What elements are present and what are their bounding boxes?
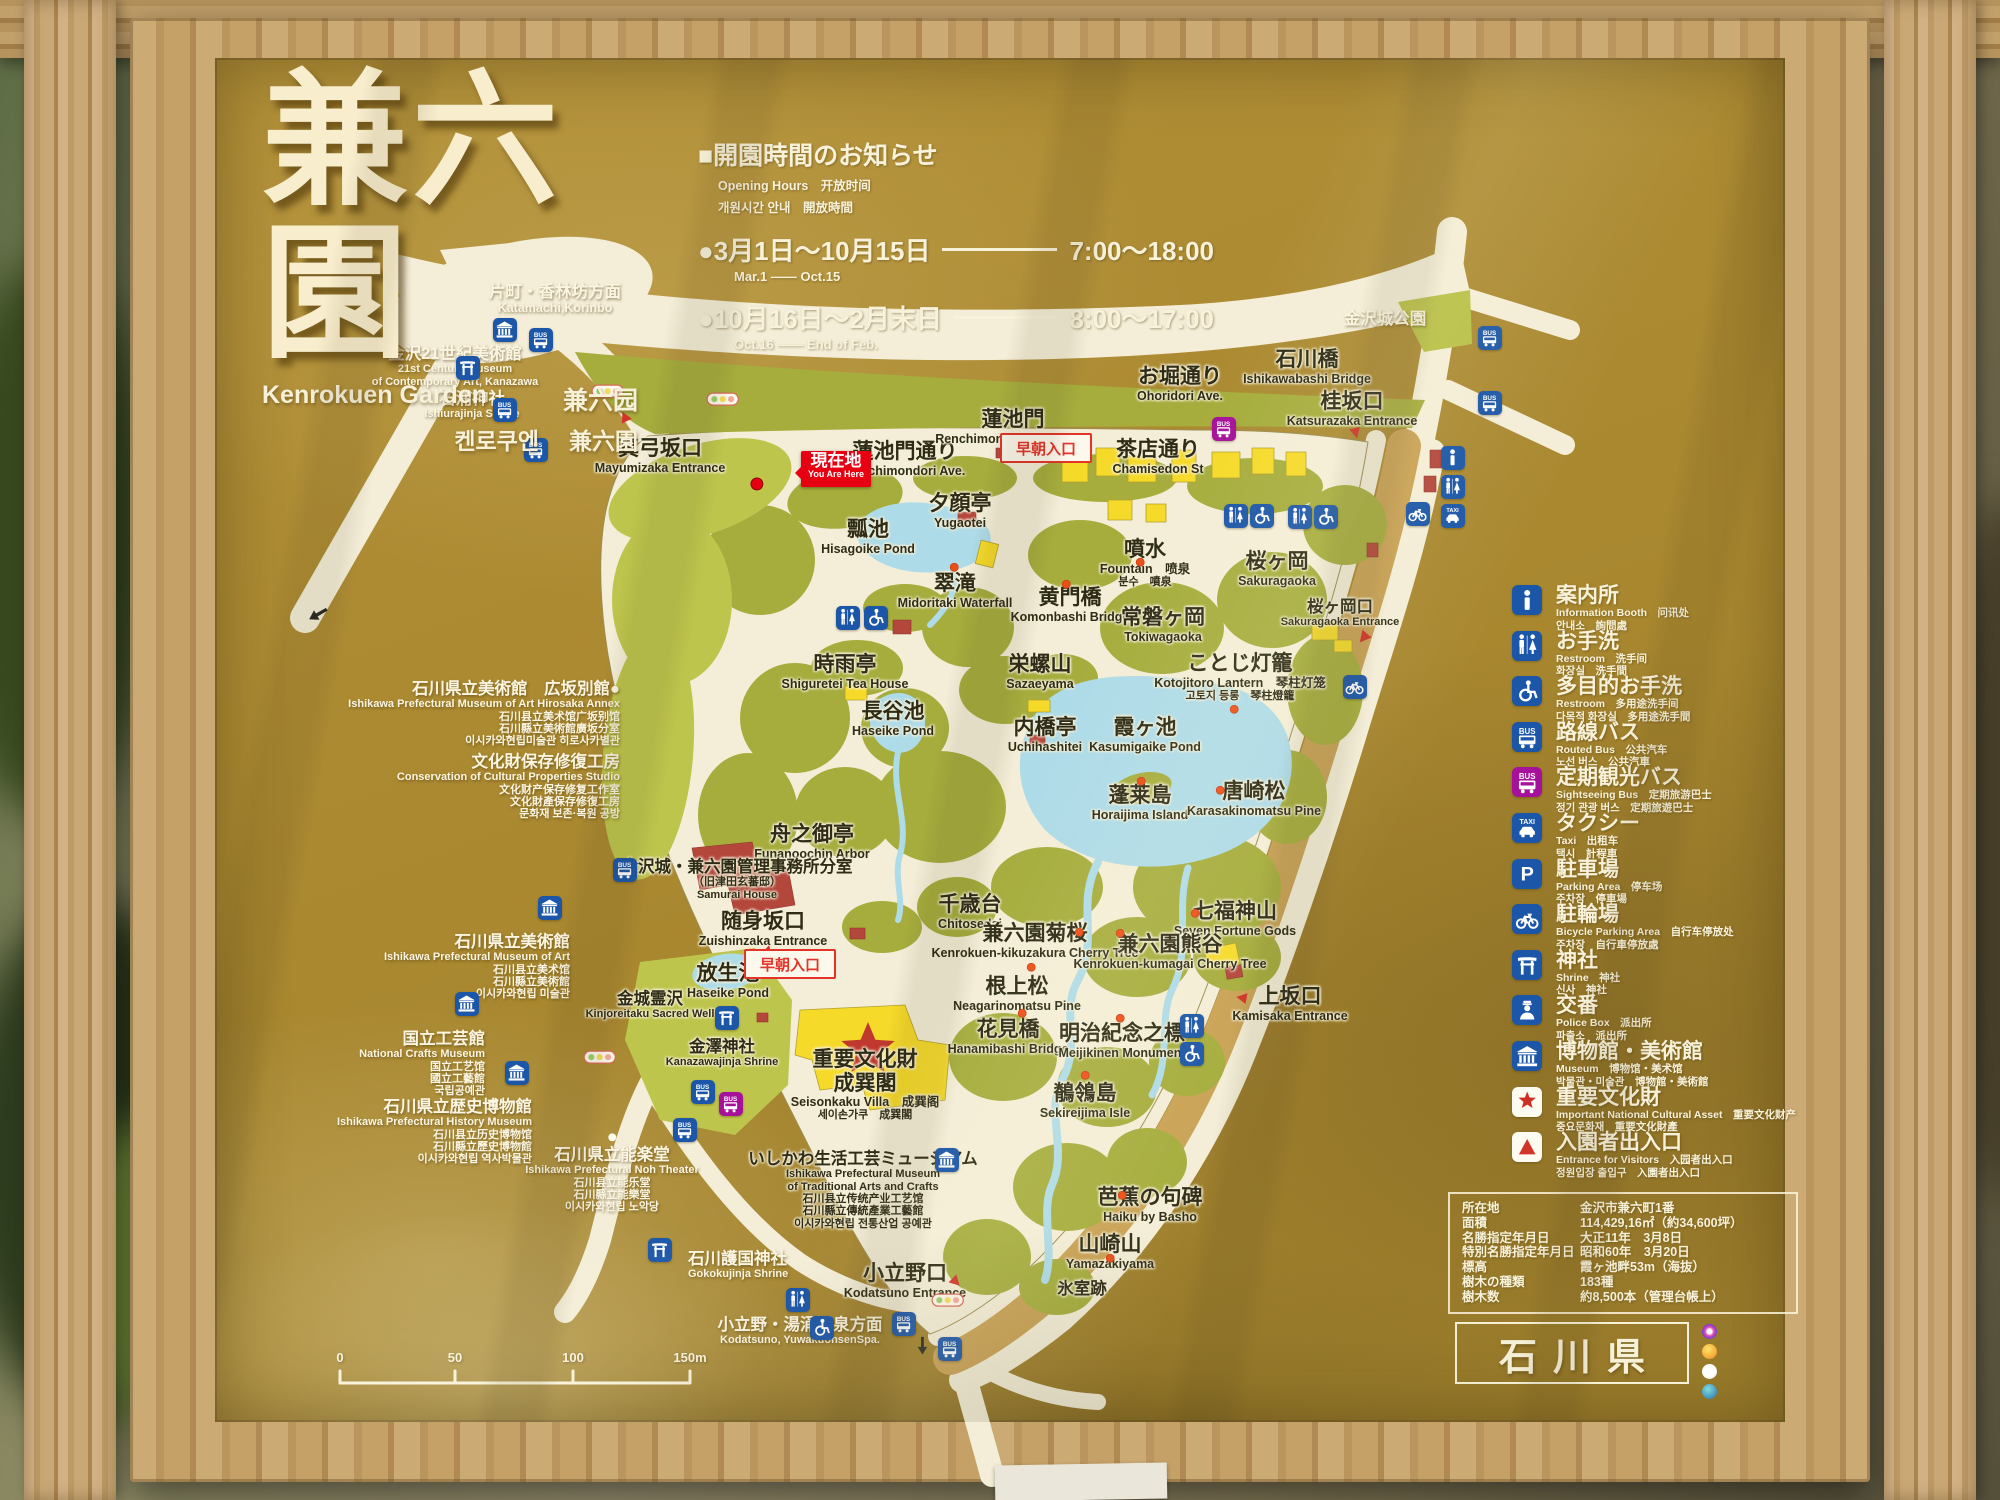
tokiwagaoka: 常磐ヶ岡Tokiwagaoka [1121,606,1205,644]
bus2-icon: BUS [719,1092,743,1116]
legend-item-taxi: TAXI タクシー Taxi 出租车택시 計程車 [1512,813,1640,860]
info-row: 名勝指定年月日大正11年 3月8日 [1462,1231,1784,1246]
svg-text:BUS: BUS [696,1084,709,1091]
dot-icon [1228,703,1241,716]
info-row: 標高霞ヶ池畔53m（海抜） [1462,1260,1784,1275]
museum-icon [505,1061,529,1085]
meijikinen-monument: 明治紀念之標Meijikinen Monument [1058,1022,1185,1060]
legend-item-police: 交番 Police Box 派出所파출소 派出所 [1512,995,1652,1042]
title-block: 兼六園 Kenrokuen Garden 兼六园 켄로쿠엔 兼六園 [262,64,638,456]
uchihashitei: 内橋亭Uchihashitei [1008,716,1082,754]
samurai-house: 金沢城・兼六園管理事務所分室（旧津田玄蕃邸）Samurai House [622,858,853,901]
taxi-icon: TAXI [1441,504,1465,528]
hirosaka-annex: 石川県立美術館 広坂別館●Ishikawa Prefectural Museum… [348,680,620,748]
info-row: 特別名勝指定年月日昭和60年 3月20日 [1462,1245,1784,1260]
museum-icon [455,992,479,1016]
acc-icon [1180,1042,1204,1066]
svg-text:BUS: BUS [618,862,631,869]
dot-icon [1214,784,1227,797]
legend-item-star: 重要文化財 Important National Cultural Asset … [1512,1087,1796,1134]
bike-icon [1512,904,1542,934]
svg-text:P: P [1520,864,1533,886]
map-overlay: 兼六園 Kenrokuen Garden 兼六园 켄로쿠엔 兼六園 ■開園時間の… [0,0,2000,1500]
pref-art-museum: 石川県立美術館Ishikawa Prefectural Museum of Ar… [384,933,570,1001]
seisonkaku-villa: 重要文化財成巽閣Seisonkaku Villa 成巽阁세이손가쿠 成巽閣 [791,1048,939,1121]
ohoridori-ave: お堀通りOhoridori Ave. [1137,365,1223,403]
legend-item-museum: 博物館・美術館 Museum 博物馆・美术馆박물관・미술관 博物館・美術館 [1512,1041,1708,1088]
basho-haiku: 芭蕉の句碑Haiku by Basho [1098,1186,1203,1224]
signal-icon [704,380,742,418]
dash-line [942,248,1057,251]
scale-tick: 0 [336,1350,343,1365]
dot-icon [1060,578,1073,591]
svg-text:TAXI: TAXI [1447,509,1460,515]
dot-icon [948,561,961,574]
early-morning-entrance-badge: 早朝入口 [744,949,836,979]
sakuragaoka: 桜ヶ岡Sakuragaoka [1238,550,1316,588]
scale-tick: 50 [448,1350,462,1365]
star-icon [1512,1087,1542,1117]
opening-hours-sub-kr: 개원시간 안내 開放時間 [718,197,1214,216]
torii-icon [1512,950,1542,980]
title-korean: 켄로쿠엔 [454,422,539,456]
history-museum: 石川県立歴史博物館Ishikawa Prefectural History Mu… [337,1098,532,1166]
kasumigaike-pond: 霞ヶ池Kasumigaike Pond [1089,716,1201,754]
haseike-pond: 長谷池Haseike Pond [852,700,934,738]
gokoku-shrine: 石川護国神社Gokokujinja Shrine [688,1250,788,1281]
sakuragaoka-entrance: 桜ヶ岡口Sakuragaoka Entrance [1281,598,1400,629]
wc-icon [1180,1014,1204,1038]
dot-icon [1079,1069,1092,1082]
svg-text:TAXI: TAXI [1519,819,1535,826]
dot-icon [1073,926,1086,939]
kumagai-cherry: 兼六園熊谷Kenrokuen-kumagai Cherry Tree [1073,933,1266,971]
color-dots [1702,1324,1717,1404]
kinjoreitaku-well: 金城霊沢Kinjoreitaku Sacred Well [586,990,715,1021]
museum-icon [935,1148,959,1172]
orange-dot-icon [1702,1344,1717,1359]
noh-theater: 石川県立能楽堂Ishikawa Prefectural Noh Theater石… [525,1146,699,1214]
himuro-remains: 氷室跡 [1057,1280,1107,1298]
dot-icon [1134,556,1147,569]
acc-icon [1512,676,1542,706]
castle-park: 金沢城公園 [1344,310,1427,328]
funanoochin-arbor: 舟之御亭Funanoochin Arbor [754,823,870,861]
legend-item-bus: BUS 路線バス Routed Bus 公共汽车노선 버스 公共汽車 [1512,722,1667,769]
bike-icon [1343,675,1367,699]
hours-row-summer: ●3月1日～10月15日 7:00～18:00 [698,231,1214,268]
svg-text:BUS: BUS [1483,395,1496,402]
svg-text:BUS: BUS [943,1341,956,1348]
acc-icon [1314,505,1338,529]
legend-item-p: P 駐車場 Parking Area 停车场주차장 停車場 [1512,859,1662,906]
legend-item-bike: 駐輪場 Bicycle Parking Area 自行车停放处주차장 自行車停放… [1512,904,1734,951]
info-row: 面積114,429,16㎡（約34,600坪） [1462,1216,1784,1231]
wc-icon [836,606,860,630]
sazaeyama: 栄螺山Sazaeyama [1006,653,1073,691]
karasakinomatsu-pine: 唐崎松Karasakinomatsu Pine [1187,780,1321,818]
wdot-icon [606,1131,618,1143]
sekireijima-isle: 鶺鴒島Sekireijima Isle [1040,1082,1130,1120]
katsurazaka-entrance: 桂坂口Katsurazaka Entrance [1287,390,1418,428]
bus2-icon: BUS [1512,767,1542,797]
kanazawajinja-shrine: 金澤神社Kanazawajinja Shrine [666,1038,778,1069]
bus-icon: BUS [938,1337,962,1361]
svg-text:BUS: BUS [1519,726,1536,735]
yugaotei: 夕顔亭Yugaotei [929,492,992,530]
scale-tick: 100 [562,1350,584,1365]
opening-hours-heading: ■開園時間のお知らせ [698,136,1214,172]
tri-icon [1232,988,1252,1008]
hisagoike-pond: 瓢池Hisagoike Pond [821,518,915,556]
dot-icon [1104,1252,1117,1265]
hanamibashi-bridge: 花見橋Hanamibashi Bridge [948,1018,1069,1056]
conservation-studio: 文化財保存修復工房Conservation of Cultural Proper… [397,753,620,821]
taxi-icon: TAXI [1512,813,1542,843]
bus-icon: BUS [1478,326,1502,350]
ishikawabashi-bridge: 石川橋Ishikawabashi Bridge [1243,348,1371,386]
bike-icon [1406,502,1430,526]
tri-icon [1512,1132,1542,1162]
chamisedon-st: 茶店通りChamisedon St [1113,438,1204,476]
opening-hours-panel: ■開園時間のお知らせ Opening Hours 开放时间 개원시간 안내 開放… [698,136,1214,352]
wc-icon [1224,504,1248,528]
legend-item-info: 案内所 Information Booth 问讯处안내소 詢問處 [1512,585,1689,632]
acc-icon [810,1316,834,1340]
title-chinese: 兼六园 [563,381,638,417]
svg-text:BUS: BUS [897,1316,910,1323]
early-morning-entrance-badge: 早朝入口 [1000,433,1092,463]
dot-icon [1135,775,1148,788]
park-info-box: 所在地金沢市兼六町1番面積114,429,16㎡（約34,600坪）名勝指定年月… [1448,1192,1798,1314]
p-icon: P [1512,859,1542,889]
dot-icon [1025,961,1038,974]
info-row: 樹木数約8,500本（管理台帳上） [1462,1290,1784,1305]
dot-icon [1116,1189,1129,1202]
acc-icon [1250,504,1274,528]
page-title: 兼六園 [262,64,638,371]
svg-text:BUS: BUS [678,1122,691,1129]
legend-item-acc: 多目的お手洗 Restroom 多用途洗手间다목적 화장실 多用途洗手間 [1512,676,1690,723]
dot-icon [1189,907,1202,920]
horaijima-island: 蓬莱島Horaijima Island [1092,784,1189,822]
legend-item-wc: お手洗 Restroom 洗手间화장실 洗手間 [1512,631,1647,678]
signal-icon [581,1038,619,1076]
torii-icon [715,1006,739,1030]
blue-dot-icon [1702,1384,1717,1399]
wc-icon [1288,505,1312,529]
police-icon [1512,995,1542,1025]
shiguretei: 時雨亭Shiguretei Tea House [782,653,909,691]
dot-icon [1114,1012,1127,1025]
bus-icon: BUS [673,1118,697,1142]
svg-text:BUS: BUS [1217,421,1230,428]
info-icon [1512,585,1542,615]
small-sign-bottom [995,1463,1168,1500]
dot-icon [1016,1007,1029,1020]
title-korean-hanja: 兼六園 [569,422,638,456]
tri-icon [1346,423,1366,443]
arrow-icon [909,1332,935,1358]
komonbashi-bridge: 黄門橋Komonbashi Bridge [1011,586,1130,624]
prefecture-box: 石川県 [1455,1322,1689,1384]
bus-icon: BUS [1512,722,1542,752]
bus-icon: BUS [1478,391,1502,415]
acc-icon [864,606,888,630]
svg-text:BUS: BUS [724,1096,737,1103]
kodatsuno-direction: 小立野・湯涌温泉方面Kodatsuno, YuwakuonsenSpa. [718,1316,883,1347]
legend-item-torii: 神社 Shrine 神社신사 神社 [1512,950,1620,997]
midoritaki-waterfall: 翠滝Midoritaki Waterfall [898,572,1013,610]
museum-icon [1512,1041,1542,1071]
scale-tick: 150m [673,1350,706,1365]
title-english: Kenrokuen Garden [262,381,487,417]
kotojitoro-lantern: ことじ灯籠Kotojitoro Lantern 琴柱灯笼고토지 등롱 琴柱燈籠 [1154,652,1326,702]
svg-text:BUS: BUS [1483,330,1496,337]
bus-icon: BUS [613,858,637,882]
info-row: 樹木の種類183種 [1462,1275,1784,1290]
legend-item-bus2: BUS 定期観光バス Sightseeing Bus 定期旅游巴士정기 관광 버… [1512,767,1712,814]
bus-icon: BUS [691,1080,715,1104]
wc-icon [1512,631,1542,661]
legend-item-tri: 入園者出入口 Entrance for Visitors 入园者出入口정원입장 … [1512,1132,1733,1179]
wc-icon [1441,475,1465,499]
svg-text:BUS: BUS [1519,772,1536,781]
opening-hours-sub-en: Opening Hours 开放时间 [718,175,1214,194]
info-row: 所在地金沢市兼六町1番 [1462,1201,1784,1216]
tri-icon [946,1272,966,1292]
museum-icon [538,896,562,920]
rainbow-dot-icon [1702,1324,1717,1339]
national-crafts-museum: 国立工芸館National Crafts Museum国立工艺馆國立工藝館국립공… [359,1030,485,1098]
arrow-icon [303,599,333,629]
yahdot-icon [748,475,766,493]
bus2-icon: BUS [1212,417,1236,441]
info-icon [1441,446,1465,470]
wc-icon [786,1288,810,1312]
dash-line [954,316,1057,319]
tri-icon [1353,627,1375,649]
torii-icon [648,1238,672,1262]
dot-icon [1114,927,1127,940]
you-are-here-badge: 現在地 You Are Here [801,451,871,487]
signboard-photo: 兼六園 Kenrokuen Garden 兼六园 켄로쿠엔 兼六園 ■開園時間の… [0,0,2000,1500]
white-dot-icon [1702,1364,1717,1379]
hours-row-winter: ●10月16日～2月末日 8:00～17:00 [698,299,1214,336]
